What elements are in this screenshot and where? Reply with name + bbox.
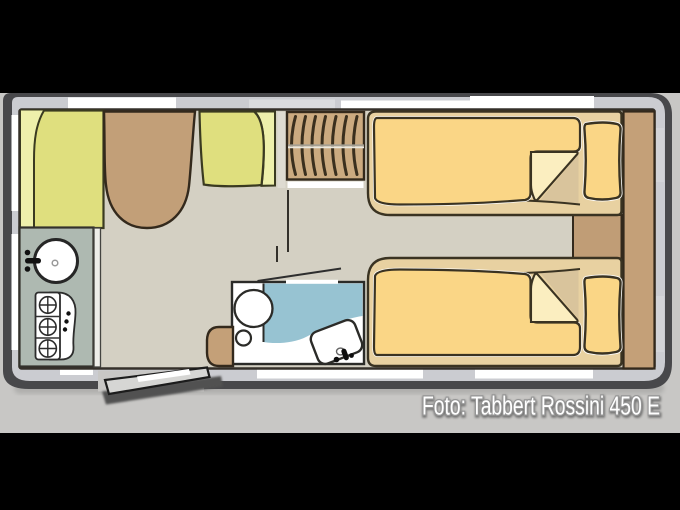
svg-text:Foto: Tabbert Rossini 450 E: Foto: Tabbert Rossini 450 E: [422, 393, 660, 421]
